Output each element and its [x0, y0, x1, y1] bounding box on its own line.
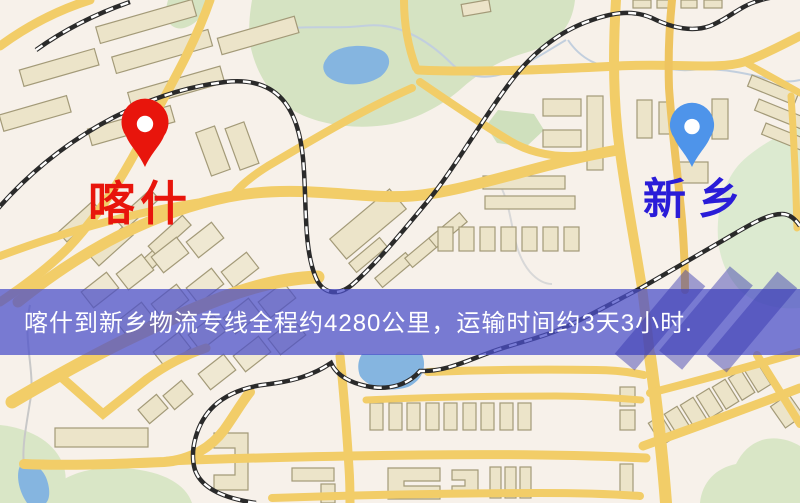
map-screenshot: 喀什到新乡物流专线全程约4280公里，运输时间约3天3小时. 喀什 新乡 [0, 0, 800, 503]
destination-label: 新乡 [643, 176, 753, 224]
banner-route-text: 喀什到新乡物流专线全程约4280公里，运输时间约3天3小时. [24, 310, 693, 337]
map-canvas[interactable]: 喀什到新乡物流专线全程约4280公里，运输时间约3天3小时. 喀什 新乡 [0, 0, 800, 503]
origin-label: 喀什 [88, 179, 192, 231]
